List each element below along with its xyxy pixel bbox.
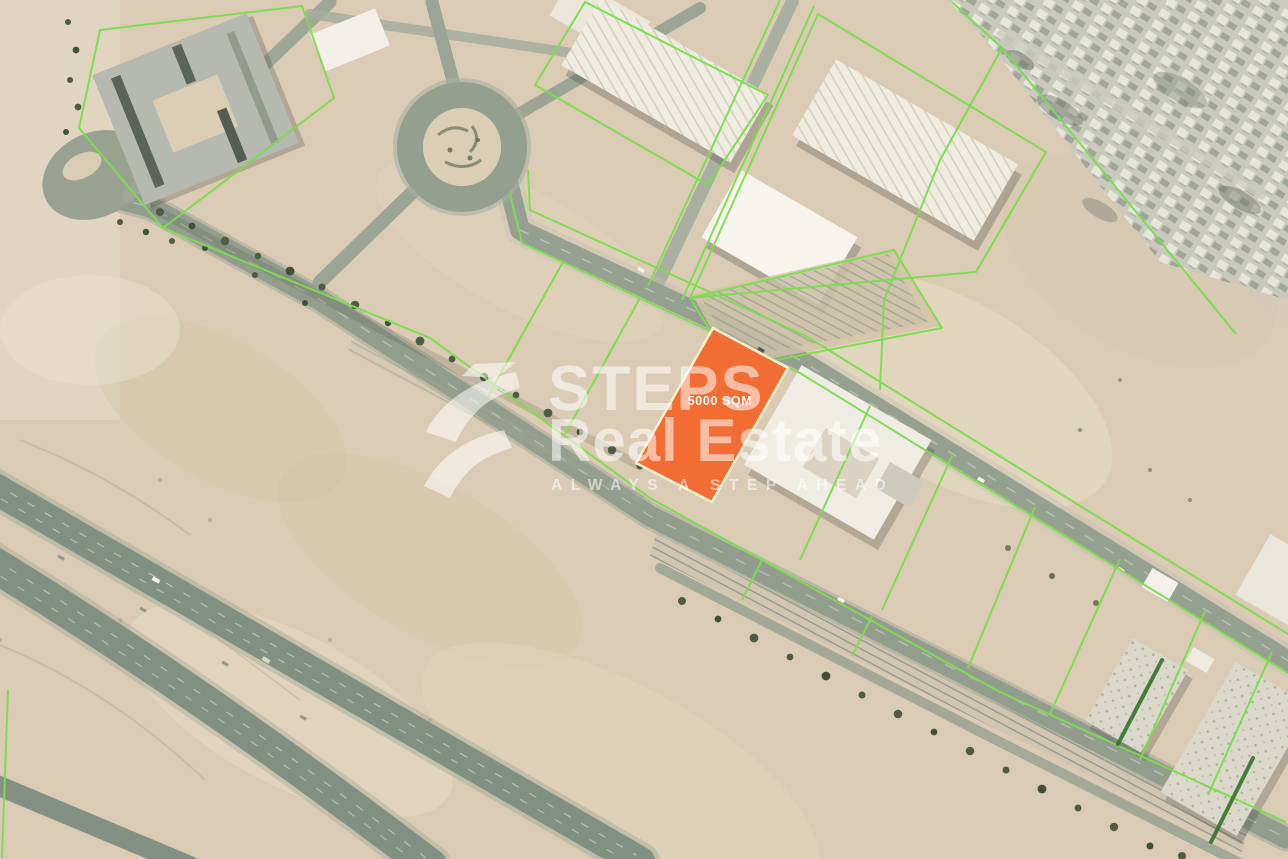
plot-area-label: 5000 SQM xyxy=(670,394,770,408)
satellite-map: 5000 SQM STEPS Real Estate ALWAYS A STEP… xyxy=(0,0,1288,859)
map-graphics xyxy=(0,0,1288,859)
light-overlay xyxy=(0,0,1288,859)
